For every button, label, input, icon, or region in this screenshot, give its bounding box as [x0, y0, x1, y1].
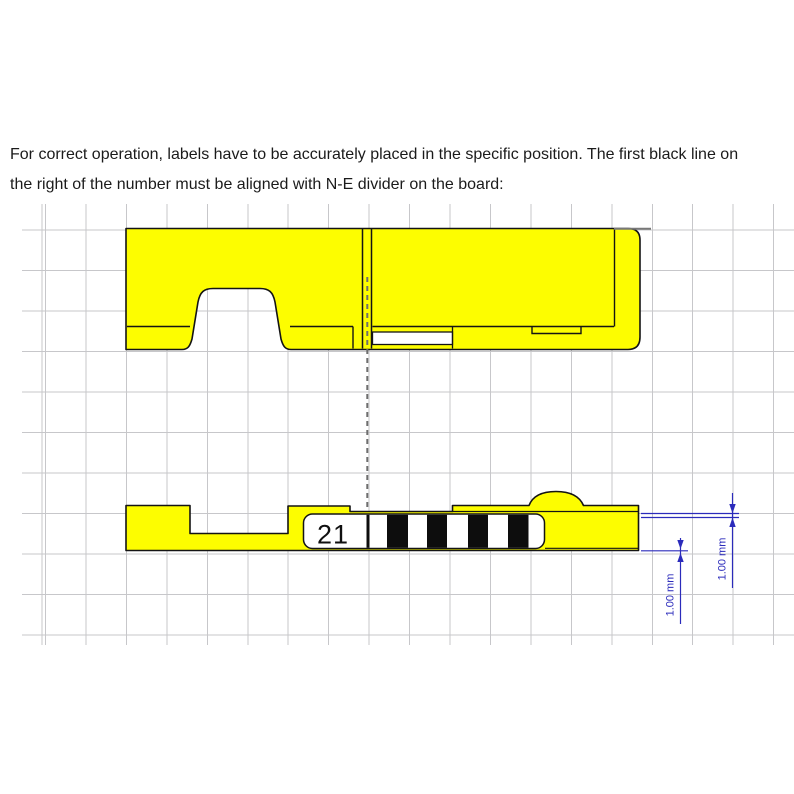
dim-arrow-down-icon	[677, 540, 683, 549]
barcode-stripe	[508, 515, 529, 548]
dimension-extension-lines	[641, 514, 739, 518]
dim-arrow-down-icon	[729, 504, 735, 514]
barcode-stripe	[387, 515, 408, 548]
dim-arrow-up-icon	[677, 553, 683, 562]
dimension-label: 1.00 mm	[665, 574, 677, 617]
label-number: 21	[317, 520, 349, 550]
dim-arrow-up-icon	[729, 518, 735, 528]
barcode-stripe	[427, 515, 447, 548]
document-page: For correct operation, labels have to be…	[0, 0, 794, 794]
dimension-right: 1.00 mm	[641, 493, 739, 588]
side-view-drawing: 21	[126, 492, 639, 551]
barcode-stripe	[468, 515, 488, 548]
top-view-drawing	[126, 229, 651, 350]
technical-drawing: 21 1.00 mm 1.00 mm	[0, 0, 794, 794]
dimension-label: 1.00 mm	[717, 538, 729, 581]
top-view-slot	[373, 332, 453, 345]
dimension-left: 1.00 mm	[641, 538, 688, 624]
alignment-stripe-thin	[367, 515, 370, 548]
